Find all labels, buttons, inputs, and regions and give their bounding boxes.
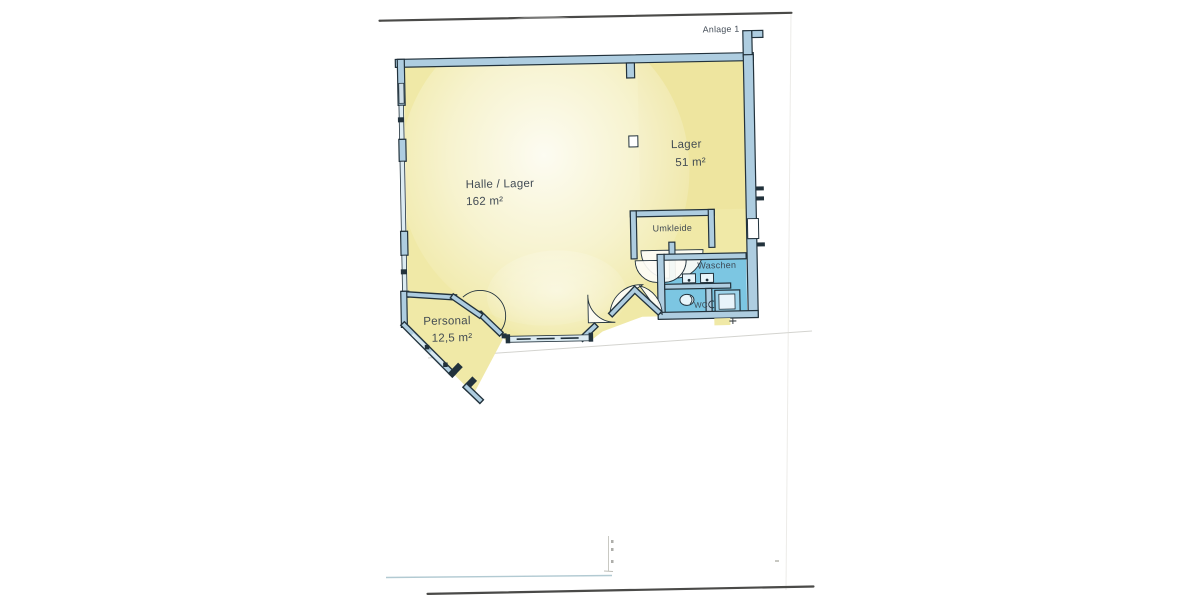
- west-wall-pillar: [401, 231, 408, 255]
- west-glazing: [400, 161, 406, 231]
- shower-tray-inner: [719, 294, 735, 309]
- page-top-edge: [380, 13, 792, 21]
- east-wall-window: [747, 218, 758, 238]
- east-wall-tick: [756, 196, 764, 200]
- east-wall-tick: [757, 242, 765, 246]
- room-area-personal: 12,5 m²: [432, 332, 473, 345]
- room-area-lager: 51 m²: [675, 156, 706, 169]
- umkleide-north-wall: [630, 209, 714, 217]
- umkleide-door-post: [669, 242, 675, 254]
- door-post: [502, 333, 507, 338]
- room-area-halle-lager: 162 m²: [466, 195, 504, 208]
- glazing-post: [589, 333, 594, 342]
- page-bottom-edge: [428, 586, 814, 593]
- room-label-wc: WC: [694, 300, 708, 309]
- room-label-halle-lager: Halle / Lager: [466, 178, 535, 191]
- window-tick: [443, 362, 448, 367]
- room-label-personal: Personal: [423, 315, 471, 328]
- north-wall-pier: [626, 63, 634, 78]
- west-wall-pillar: [399, 139, 406, 161]
- annotation-label: Anlage 1: [703, 24, 740, 35]
- room-label-umkleide: Umkleide: [652, 223, 692, 234]
- fold-mark: [611, 548, 614, 551]
- scan-fold-marks: [386, 536, 779, 578]
- east-wall-tick: [756, 186, 764, 190]
- hall-column: [629, 136, 638, 147]
- fold-line-tick: [604, 571, 613, 572]
- umkleide-east-wall: [708, 209, 715, 247]
- northeast-corner-stub: [743, 31, 752, 57]
- exterior-step: [714, 318, 730, 325]
- door-jamb-stub: [452, 367, 458, 373]
- fold-mark: [611, 540, 614, 543]
- floor-plan-drawing: Anlage 1 Halle / Lager 162 m² Lager 51 m…: [0, 0, 1200, 600]
- south-wall-sanitary: [658, 311, 758, 320]
- fold-mark: [775, 560, 779, 562]
- fold-mark: [611, 560, 614, 563]
- window-tick: [425, 345, 430, 350]
- umkleide-west-wall: [630, 211, 637, 259]
- northeast-corner-step: [752, 30, 763, 37]
- room-label-lager: Lager: [671, 139, 702, 152]
- west-glazing-tick: [401, 269, 407, 274]
- scanned-floor-plan-page: Anlage 1 Halle / Lager 162 m² Lager 51 m…: [0, 0, 1200, 600]
- west-glazing-tick: [398, 117, 404, 122]
- west-window-sill: [399, 83, 404, 103]
- fold-line-horizontal: [386, 576, 612, 578]
- waschen-counter-wall: [665, 283, 731, 289]
- room-label-waschen: Waschen: [697, 260, 736, 271]
- building-plan: Anlage 1 Halle / Lager 162 m² Lager 51 m…: [379, 11, 813, 595]
